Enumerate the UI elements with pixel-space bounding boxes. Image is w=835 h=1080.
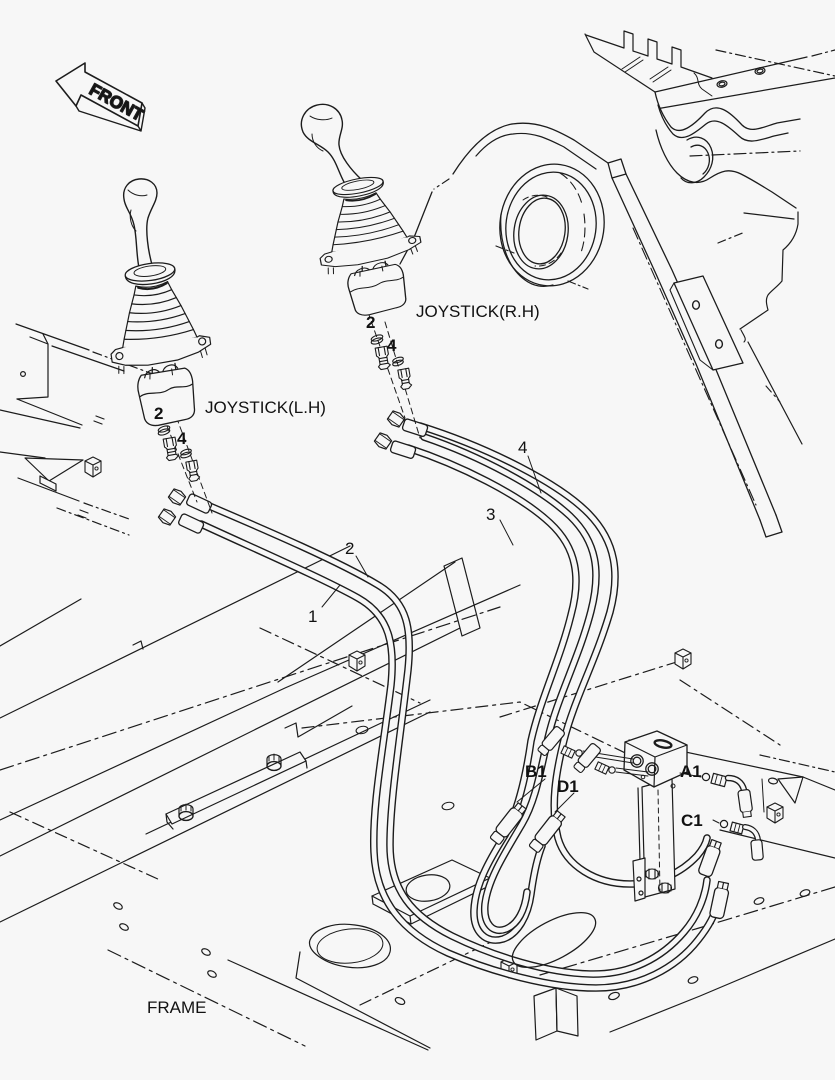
svg-text:2: 2: [154, 404, 163, 423]
svg-text:B1: B1: [525, 762, 547, 781]
svg-text:2: 2: [366, 313, 375, 332]
svg-text:2: 2: [345, 539, 354, 558]
svg-text:JOYSTICK(R.H): JOYSTICK(R.H): [416, 302, 540, 321]
svg-text:A1: A1: [680, 762, 702, 781]
svg-text:4: 4: [518, 438, 527, 457]
svg-text:D1: D1: [557, 777, 579, 796]
svg-text:C1: C1: [681, 811, 703, 830]
svg-text:4: 4: [177, 429, 187, 448]
svg-text:1: 1: [308, 607, 317, 626]
svg-text:3: 3: [486, 505, 495, 524]
svg-text:JOYSTICK(L.H): JOYSTICK(L.H): [205, 398, 326, 417]
svg-text:4: 4: [387, 336, 397, 355]
svg-text:FRAME: FRAME: [147, 998, 207, 1017]
